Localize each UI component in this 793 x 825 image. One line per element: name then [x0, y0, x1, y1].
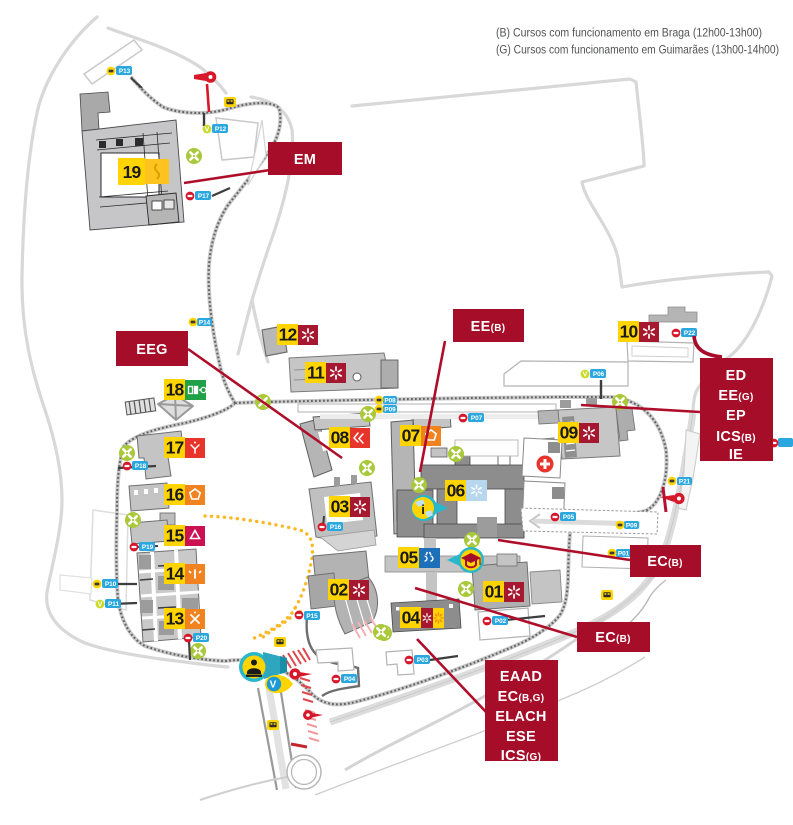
svg-text:EAAD: EAAD	[500, 669, 542, 685]
svg-text:13: 13	[166, 609, 185, 629]
svg-text:05: 05	[400, 548, 419, 568]
svg-text:EP: EP	[726, 408, 746, 424]
svg-text:ESE: ESE	[506, 729, 536, 745]
svg-text:P04: P04	[344, 676, 356, 683]
svg-text:03: 03	[331, 497, 350, 517]
svg-text:08: 08	[331, 428, 350, 448]
svg-text:17: 17	[166, 438, 184, 458]
svg-text:V: V	[270, 680, 277, 691]
svg-text:P12: P12	[215, 126, 227, 133]
svg-text:P02: P02	[495, 618, 507, 625]
svg-text:11: 11	[307, 363, 325, 383]
svg-text:ED: ED	[726, 368, 747, 384]
svg-text:P17: P17	[198, 193, 210, 200]
svg-text:P10: P10	[105, 581, 117, 588]
svg-text:P13: P13	[119, 68, 131, 75]
svg-text:P11: P11	[108, 601, 119, 608]
svg-text:15: 15	[166, 526, 185, 546]
svg-text:P18: P18	[135, 463, 147, 470]
svg-text:02: 02	[330, 580, 349, 600]
svg-text:18: 18	[166, 380, 185, 400]
svg-text:P20: P20	[196, 635, 208, 642]
svg-text:EM: EM	[294, 152, 316, 168]
svg-text:P21: P21	[679, 479, 691, 486]
svg-text:P05: P05	[563, 514, 575, 521]
svg-text:P19: P19	[142, 544, 154, 551]
svg-text:04: 04	[402, 608, 421, 628]
svg-text:19: 19	[123, 162, 142, 182]
svg-text:P22: P22	[684, 330, 696, 337]
svg-text:P08: P08	[384, 398, 396, 405]
svg-text:09: 09	[560, 423, 579, 443]
svg-text:ELACH: ELACH	[495, 709, 546, 725]
svg-text:P14: P14	[199, 320, 211, 327]
svg-text:12: 12	[279, 325, 298, 345]
svg-text:14: 14	[166, 564, 185, 584]
svg-text:P06: P06	[593, 371, 605, 378]
svg-text:i: i	[421, 502, 425, 517]
svg-text:16: 16	[166, 485, 185, 505]
svg-text:10: 10	[620, 322, 639, 342]
svg-text:06: 06	[447, 481, 466, 501]
svg-text:07: 07	[402, 426, 420, 446]
svg-text:EEG: EEG	[136, 342, 168, 358]
svg-text:P09: P09	[384, 407, 396, 414]
svg-text:P03: P03	[417, 657, 429, 664]
svg-text:(B) Cursos com funcionamento e: (B) Cursos com funcionamento em Braga (1…	[496, 26, 762, 40]
svg-text:IE: IE	[729, 447, 743, 463]
svg-text:P09: P09	[626, 523, 638, 530]
svg-text:P15: P15	[306, 613, 318, 620]
svg-text:P16: P16	[330, 524, 342, 531]
svg-text:P01: P01	[618, 551, 630, 558]
svg-text:01: 01	[485, 582, 504, 602]
svg-text:(G) Cursos com funcionamento e: (G) Cursos com funcionamento em Guimarãe…	[496, 43, 779, 57]
svg-text:P07: P07	[471, 415, 483, 422]
